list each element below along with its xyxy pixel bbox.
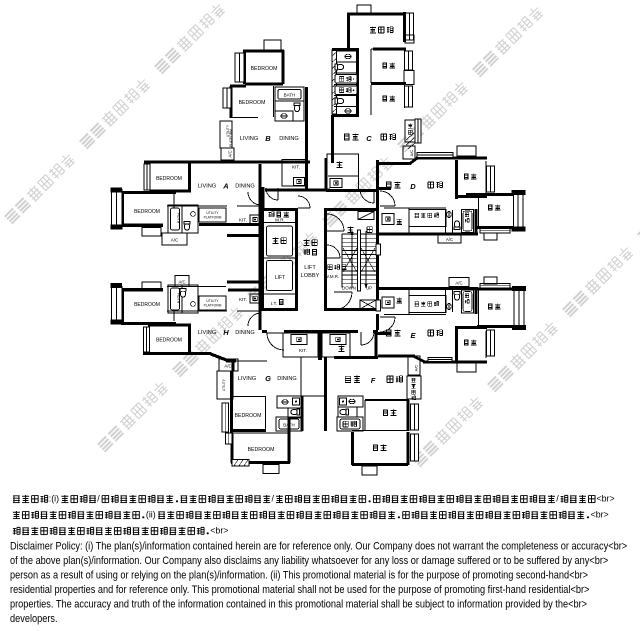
svg-text:A/C: A/C (409, 150, 414, 157)
svg-text:A/C: A/C (446, 237, 453, 242)
svg-text:LIVING: LIVING (198, 184, 216, 190)
svg-text:LIVING: LIVING (198, 330, 216, 336)
svg-text:LIVING: LIVING (238, 376, 256, 382)
svg-text:<br>: <br> (591, 510, 609, 520)
svg-text:D: D (410, 182, 416, 191)
svg-text:C: C (366, 134, 372, 143)
svg-text:A/C: A/C (228, 151, 233, 158)
svg-text:KIT.: KIT. (292, 165, 300, 170)
svg-text:KIT.: KIT. (299, 348, 307, 353)
svg-text:DINING: DINING (235, 184, 255, 190)
svg-text:H: H (223, 328, 229, 337)
svg-text:BEDROOM: BEDROOM (251, 66, 278, 72)
svg-text:PLATFORM: PLATFORM (204, 304, 222, 308)
svg-text:LIFT: LIFT (304, 265, 316, 271)
svg-text:DINING: DINING (279, 136, 299, 142)
svg-text:KIT.: KIT. (239, 218, 247, 223)
svg-text:KIT.: KIT. (239, 297, 247, 302)
svg-text:DINING: DINING (235, 330, 255, 336)
svg-text:BATH: BATH (284, 93, 296, 98)
svg-text:UP: UP (366, 286, 372, 291)
svg-text:A: A (222, 182, 228, 191)
svg-text:BEDROOM: BEDROOM (156, 176, 182, 182)
svg-text:BEDROOM: BEDROOM (248, 447, 275, 453)
svg-text:F: F (371, 376, 376, 385)
svg-text:A/C: A/C (179, 280, 186, 285)
svg-text:UTILITY: UTILITY (222, 378, 226, 391)
svg-text:BATH: BATH (176, 213, 181, 223)
svg-text:BEDROOM: BEDROOM (134, 209, 160, 215)
svg-text:LIFT: LIFT (275, 275, 285, 281)
svg-text:UTILITY: UTILITY (206, 211, 219, 215)
svg-text:UTILITY: UTILITY (206, 299, 219, 303)
svg-text:PLATFORM: PLATFORM (204, 216, 222, 220)
svg-text:I.T.: I.T. (271, 301, 277, 307)
svg-text:B: B (265, 134, 271, 143)
svg-text:DOWN: DOWN (342, 286, 356, 291)
svg-text:BEDROOM: BEDROOM (156, 338, 182, 344)
svg-text:BEDROOM: BEDROOM (134, 302, 160, 308)
svg-text:residential properties and for: residential properties and for reference… (10, 584, 589, 596)
svg-text::(i): :(i) (49, 494, 59, 504)
svg-text:<br>: <br> (597, 494, 615, 504)
svg-text:PLATFORM: PLATFORM (229, 129, 233, 147)
svg-text:M.R.: M.R. (275, 218, 285, 223)
svg-text:W.M.R.: W.M.R. (325, 274, 339, 279)
svg-text:LOBBY: LOBBY (301, 273, 320, 279)
svg-text:BEDROOM: BEDROOM (239, 100, 266, 106)
svg-text:<br>: <br> (210, 526, 228, 536)
svg-text:Disclaimer Policy: (i) The pla: Disclaimer Policy: (i) The plan(s)/infor… (10, 541, 627, 553)
svg-text:DINING: DINING (277, 376, 297, 382)
svg-text:A/C: A/C (224, 364, 231, 369)
svg-text:person as a result of using or: person as a result of using or relying o… (10, 570, 588, 582)
svg-text:A/C: A/C (414, 365, 419, 372)
svg-text:developers.: developers. (10, 614, 58, 626)
svg-text:G: G (265, 374, 271, 383)
svg-text:A/C: A/C (171, 238, 179, 243)
svg-text:(ii): (ii) (146, 510, 156, 520)
svg-text:of the above plan(s)/informati: of the above plan(s)/information. Our Co… (10, 555, 608, 567)
svg-text:properties. The accuracy and t: properties. The accuracy and truth of th… (10, 599, 587, 611)
svg-text:BEDROOM: BEDROOM (235, 413, 262, 419)
svg-text:A/C: A/C (455, 281, 462, 286)
svg-text:LIVING: LIVING (240, 136, 258, 142)
